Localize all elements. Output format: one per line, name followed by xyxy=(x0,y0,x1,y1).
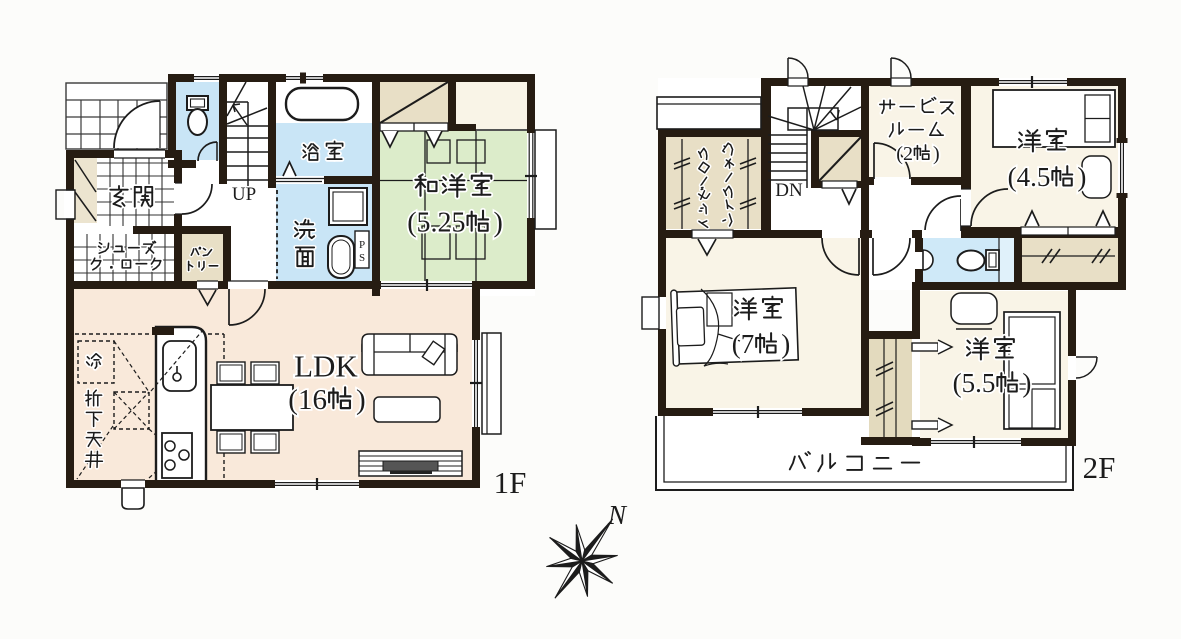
svg-text:N: N xyxy=(607,500,628,530)
svg-text:(2: (2 xyxy=(896,143,913,165)
svg-text:2F: 2F xyxy=(1083,450,1116,485)
svg-text:S: S xyxy=(359,252,365,264)
svg-text:(5.25: (5.25 xyxy=(407,208,465,239)
svg-text:LDK: LDK xyxy=(294,349,358,384)
svg-text:(4.5: (4.5 xyxy=(1008,162,1051,192)
svg-text:(16: (16 xyxy=(288,384,327,416)
svg-text:(7: (7 xyxy=(732,329,755,359)
svg-text:(5.5: (5.5 xyxy=(953,368,996,398)
svg-text:): ) xyxy=(494,208,503,239)
svg-text:DN: DN xyxy=(775,180,803,201)
svg-text:UP: UP xyxy=(232,184,256,205)
svg-text:P: P xyxy=(359,239,365,251)
svg-text:1F: 1F xyxy=(494,465,527,500)
svg-text:): ) xyxy=(1022,368,1031,398)
svg-text:): ) xyxy=(933,143,940,165)
svg-text:): ) xyxy=(356,384,366,416)
svg-text:): ) xyxy=(781,329,790,359)
svg-text:): ) xyxy=(1077,162,1086,192)
